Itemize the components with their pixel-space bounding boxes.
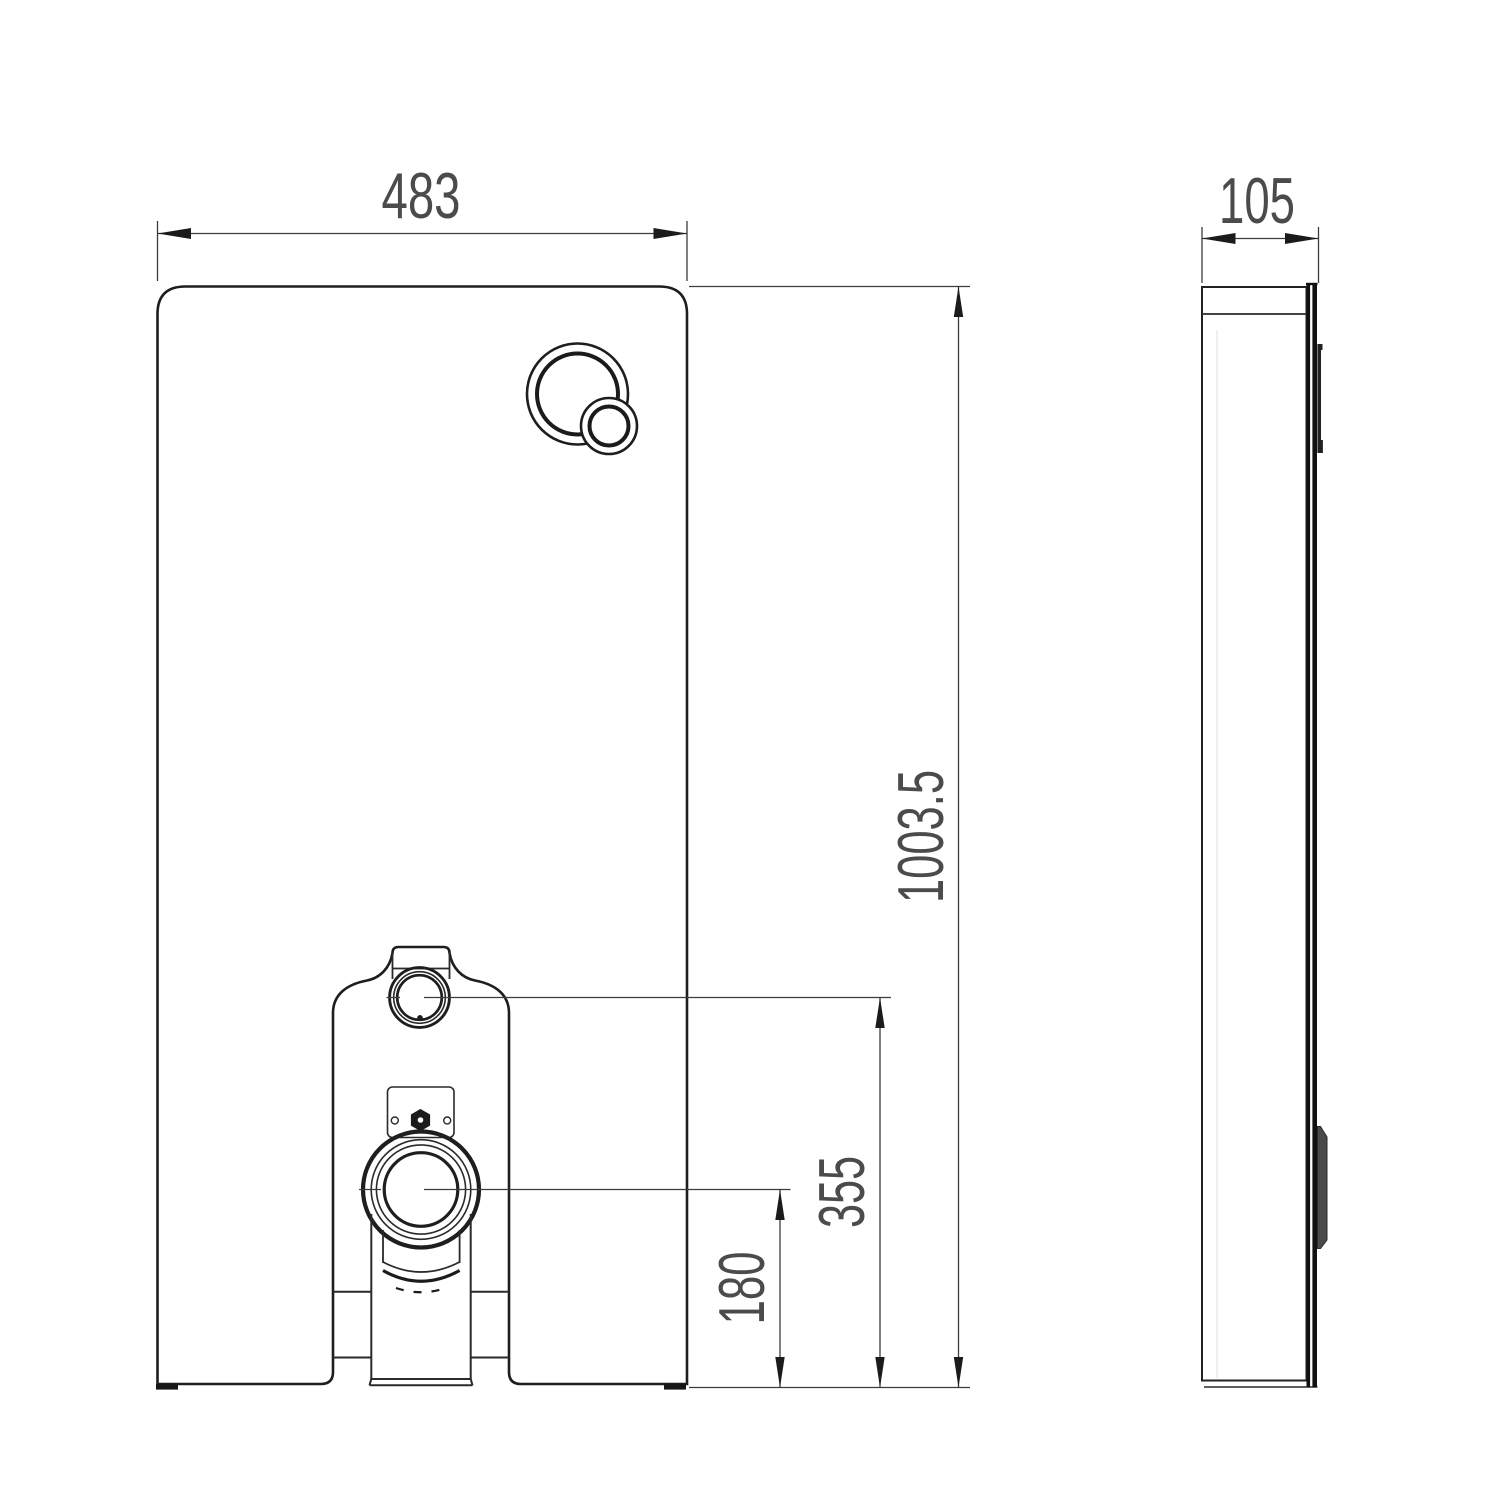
svg-text:355: 355: [805, 1156, 878, 1228]
svg-text:1003.5: 1003.5: [884, 770, 957, 903]
svg-text:180: 180: [705, 1252, 778, 1325]
svg-text:483: 483: [382, 159, 461, 232]
svg-text:105: 105: [1219, 164, 1295, 237]
